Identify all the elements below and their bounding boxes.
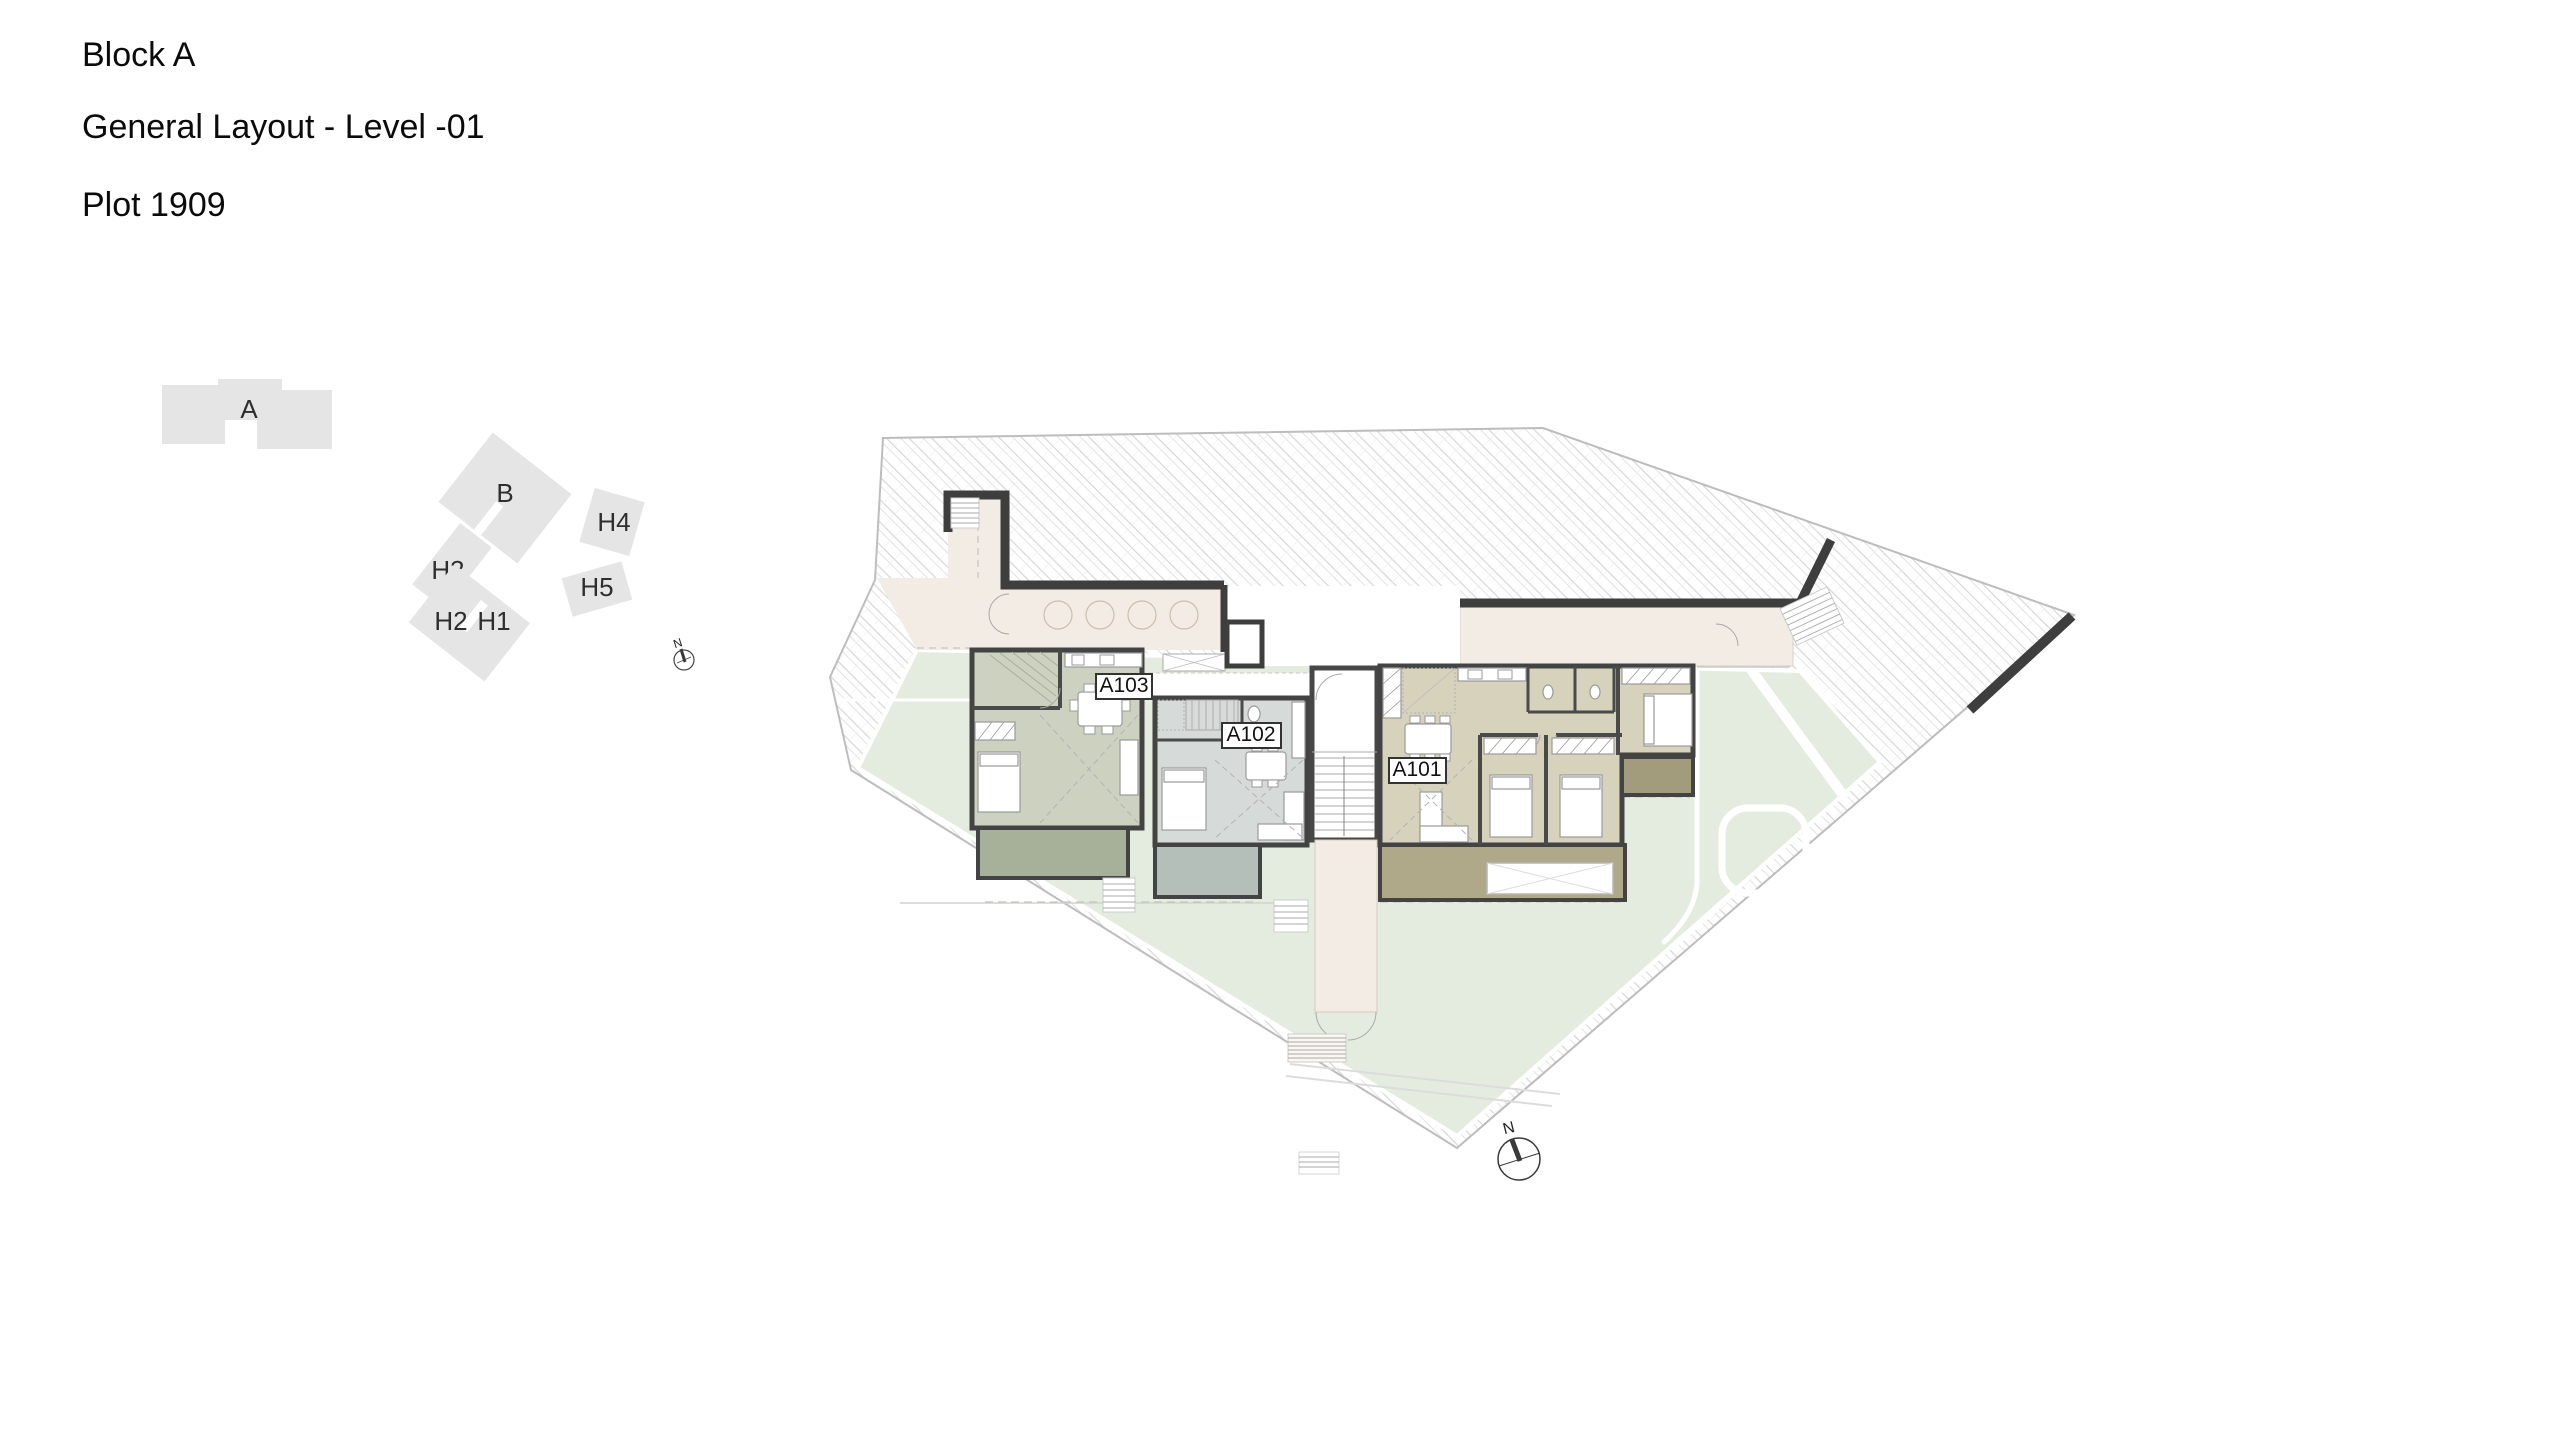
floor-plan-page: { "header": { "line1": "Block A", "line2… — [0, 0, 2560, 1440]
key-plan-north-label: N — [671, 635, 684, 651]
exterior-stair-a102 — [1274, 900, 1308, 932]
terrace-a101-side — [1622, 757, 1693, 795]
terrace-a102 — [1155, 845, 1260, 897]
north-label: N — [1501, 1119, 1516, 1138]
svg-text:A103: A103 — [1099, 674, 1148, 697]
key-plan-label-h2: H2 — [434, 606, 467, 636]
svg-text:A101: A101 — [1392, 758, 1441, 781]
key-plan-north-arrow-icon: N — [671, 635, 694, 670]
page-title: Block A — [82, 36, 196, 74]
plot-number: Plot 1909 — [82, 186, 226, 224]
title-block: Block A General Layout - Level -01 Plot … — [82, 36, 485, 224]
unit-label-a101: A101 — [1389, 758, 1446, 783]
terrace-a103 — [978, 828, 1128, 878]
key-plan-building-a: A — [162, 379, 332, 449]
key-plan-label-h4: H4 — [597, 507, 630, 537]
a101-cabinets — [1383, 668, 1401, 718]
a101-planter — [1487, 863, 1613, 894]
a101-wardrobe-bed3 — [1552, 738, 1614, 754]
north-compass: N — [1498, 1119, 1540, 1180]
void-shaft — [1163, 654, 1225, 671]
a101-bed3 — [1560, 775, 1602, 837]
svg-text:A102: A102 — [1226, 723, 1275, 746]
entry-stair — [1288, 1034, 1346, 1062]
unit-label-a103: A103 — [1096, 674, 1152, 699]
key-plan-label-b: B — [496, 478, 513, 508]
key-plan: A B H4 H3 H5 H2 H1 N — [162, 379, 694, 681]
drawing-canvas: Block A General Layout - Level -01 Plot … — [0, 0, 2560, 1440]
key-plan-label-h5: H5 — [580, 572, 613, 602]
exterior-stair-a103 — [1103, 878, 1135, 912]
a102-bed — [1162, 768, 1206, 830]
unit-label-a102: A102 — [1222, 723, 1281, 748]
page-subtitle: General Layout - Level -01 — [82, 108, 485, 146]
east-corridor — [1460, 604, 1793, 666]
elevator — [1227, 622, 1262, 666]
a103-bed — [978, 752, 1020, 812]
service-corridor — [1010, 585, 1224, 650]
a101-wardrobe-top — [1622, 668, 1690, 684]
stair-core — [1312, 668, 1377, 840]
key-plan-label-h1: H1 — [477, 606, 510, 636]
a101-dining-table — [1405, 716, 1451, 761]
a103-sofa — [1120, 740, 1138, 795]
lower-garden-stair — [1299, 1152, 1339, 1174]
a101-wardrobe-bed2 — [1484, 738, 1536, 754]
a101-bed2 — [1490, 775, 1532, 837]
a103-wardrobe — [975, 722, 1015, 740]
key-plan-label-a: A — [240, 394, 258, 424]
exterior-stair-northwest — [951, 498, 979, 528]
a101-bed-master — [1644, 694, 1692, 746]
unit-a103: A103 — [972, 650, 1152, 912]
